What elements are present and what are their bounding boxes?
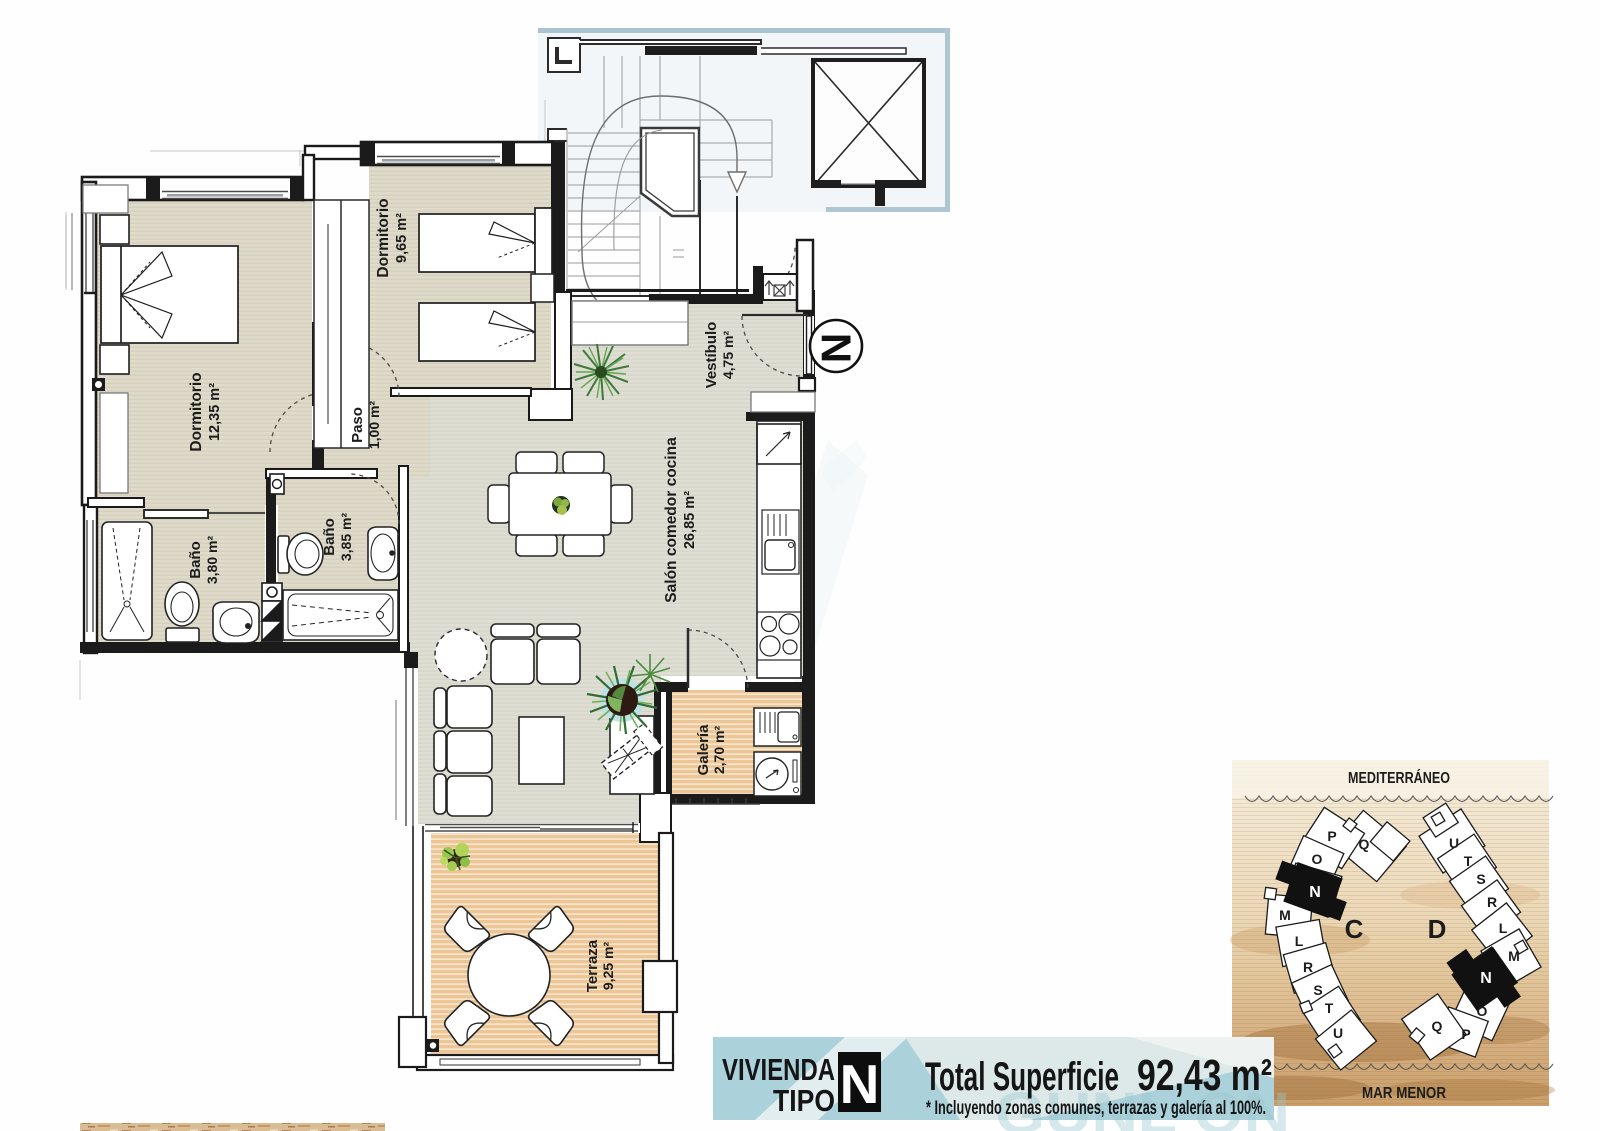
svg-text:D: D	[1428, 914, 1447, 944]
svg-text:VIVIENDA: VIVIENDA	[722, 1052, 835, 1087]
svg-text:9,25 m²: 9,25 m²	[600, 942, 616, 991]
svg-text:N: N	[813, 333, 860, 363]
svg-text:S: S	[1313, 982, 1322, 998]
svg-text:Total Superficie: Total Superficie	[925, 1055, 1119, 1099]
svg-text:P: P	[1461, 1026, 1470, 1042]
svg-text:R: R	[1487, 894, 1497, 910]
svg-text:Paso: Paso	[349, 407, 366, 443]
svg-text:Baño: Baño	[187, 541, 204, 579]
svg-text:1,00 m²: 1,00 m²	[366, 401, 382, 450]
svg-text:26,85 m²: 26,85 m²	[682, 491, 698, 549]
svg-text:S: S	[1476, 871, 1485, 887]
svg-text:U: U	[1333, 1025, 1343, 1041]
svg-text:* Incluyendo zonas comunes, te: * Incluyendo zonas comunes, terrazas y g…	[926, 1098, 1266, 1119]
svg-text:N: N	[1309, 884, 1321, 901]
svg-text:Vestíbulo: Vestíbulo	[703, 322, 720, 389]
svg-text:U: U	[1449, 835, 1459, 851]
svg-text:N: N	[1480, 970, 1492, 987]
svg-text:Terraza: Terraza	[584, 939, 601, 992]
svg-text:Dormitorio: Dormitorio	[375, 198, 392, 277]
svg-text:T: T	[1325, 1000, 1334, 1016]
svg-text:L: L	[1295, 933, 1304, 949]
svg-text:TIPO: TIPO	[773, 1083, 835, 1118]
svg-text:Salón comedor cocina: Salón comedor cocina	[663, 437, 680, 603]
svg-text:P: P	[1327, 828, 1336, 844]
svg-text:Dormitorio: Dormitorio	[188, 372, 205, 451]
svg-text:12,35 m²: 12,35 m²	[207, 383, 223, 441]
svg-text:Baño: Baño	[321, 518, 338, 556]
svg-text:N: N	[840, 1053, 880, 1115]
svg-text:C: C	[1345, 914, 1364, 944]
svg-text:3,85 m²: 3,85 m²	[338, 513, 354, 562]
svg-text:MAR MENOR: MAR MENOR	[1362, 1085, 1446, 1102]
svg-text:M: M	[1508, 948, 1520, 964]
svg-text:9,65 m²: 9,65 m²	[394, 213, 410, 263]
svg-text:R: R	[1303, 959, 1313, 975]
svg-text:3,80 m²: 3,80 m²	[204, 536, 220, 585]
svg-text:O: O	[1312, 851, 1323, 867]
svg-text:Galería: Galería	[695, 724, 712, 776]
svg-text:L: L	[1499, 920, 1508, 936]
svg-text:T: T	[1464, 853, 1473, 869]
svg-text:O: O	[1477, 1003, 1488, 1019]
svg-text:M: M	[1279, 907, 1291, 923]
svg-text:Q: Q	[1432, 1018, 1443, 1034]
svg-text:Q: Q	[1359, 836, 1370, 852]
svg-text:4,75 m²: 4,75 m²	[720, 331, 736, 380]
svg-text:2,70 m²: 2,70 m²	[711, 726, 727, 775]
svg-text:MEDITERRÁNEO: MEDITERRÁNEO	[1348, 770, 1450, 787]
svg-text:92,43 m²: 92,43 m²	[1137, 1051, 1272, 1100]
